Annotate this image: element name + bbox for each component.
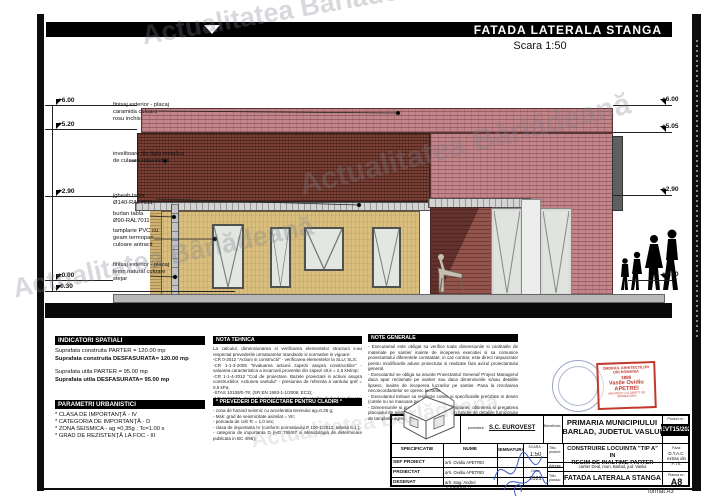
level-line <box>45 291 235 292</box>
annotation-wood-finish: finisaj exterior - placaj lemn natural c… <box>113 262 177 282</box>
annotation-windows: tamplarie PVC cu geam termopan culoare a… <box>113 228 177 248</box>
fold-mark-icon <box>204 25 220 34</box>
porch-pillar <box>521 199 541 295</box>
designer-name: S.C. EUROVEST S.R.L. <box>489 425 535 442</box>
building-roof-metal-tile <box>137 133 430 202</box>
dimension-line-vertical <box>52 105 53 291</box>
sheet-title-value: FATADA LATERALA STANGA <box>564 475 661 482</box>
phase-value: D.T.A.C. extras din P.Th. <box>664 451 689 466</box>
drawing-sheet: FATADA LATERALA STANGA Scara 1:50 <box>0 0 707 500</box>
section-title-indicatori: INDICATORI SPATIALI <box>55 336 205 345</box>
section-title-note-generale: NOTE GENERALE <box>368 334 518 342</box>
level-right-1: +5.05 <box>662 123 678 130</box>
window-casement-symbol <box>306 229 342 269</box>
porch-interior <box>430 207 492 295</box>
door-casement-symbol <box>543 211 569 293</box>
indicatori-line: Suprafata utila PARTER = 95.00 mp <box>55 369 215 376</box>
project-no-label: Proiect nr.: <box>663 417 689 421</box>
level-right-0: +6.00 <box>662 96 678 103</box>
tb-line <box>547 471 690 472</box>
tb-line <box>562 414 563 443</box>
row-spec: DESENAT <box>393 480 442 485</box>
tb-line <box>662 414 663 487</box>
row-spec: PROIECTAT <box>393 470 442 475</box>
format-label: format A3 <box>648 489 674 495</box>
indicatori-line: Suprafata construita DESFASURATA= 120.00… <box>55 356 215 363</box>
window-3 <box>304 227 344 271</box>
prevederi-body: - zona de hazard seismic cu acceleratia … <box>213 408 362 441</box>
client-name: PRIMARIA MUNICIPIULUI BARLAD, JUDETUL VA… <box>562 419 662 436</box>
annotation-roof: invelitoare din tigla metalica de culoar… <box>113 151 191 165</box>
level-line <box>45 196 137 197</box>
porch-door-2 <box>541 209 571 295</box>
window-casement-symbol <box>272 229 289 286</box>
window-1 <box>212 224 244 289</box>
sheet-no-value: A8 <box>664 477 689 487</box>
architect-stamp: ORDINUL ARHITECTILOR DIN ROMANIA 3886 Va… <box>596 361 657 410</box>
address-value: cartier Deal, mun. Barlad, jud. Vaslui <box>564 464 661 469</box>
window-casement-symbol <box>374 229 399 286</box>
row-spec: SEF PROIECT <box>393 460 442 465</box>
designer-label: proiectant: <box>468 426 485 430</box>
building-plinth <box>113 294 665 303</box>
border-microtext <box>696 40 698 340</box>
level-line <box>613 132 672 133</box>
tb-line <box>390 443 690 444</box>
round-stamp-inner <box>558 366 598 406</box>
level-line <box>613 105 672 106</box>
bench-icon <box>434 250 470 294</box>
level-line <box>45 129 137 130</box>
tb-line <box>460 414 461 443</box>
section-title-prevederi: * PREVEDERI DE PROIECTARE PENTRU CLADIRI… <box>213 398 362 406</box>
section-title-nota-tehnica: NOTA TEHNICA <box>213 336 362 344</box>
scale-label: Scara 1:50 <box>495 40 585 52</box>
designer-cell: proiectant: S.C. EUROVEST S.R.L. inregis… <box>460 416 543 442</box>
parametri-line: * GRAD DE REZISTENŢĂ LA FOC - III <box>55 433 215 440</box>
level-line <box>613 195 672 196</box>
porch-door-1 <box>492 209 522 295</box>
ground-line <box>45 303 672 318</box>
title-bar: FATADA LATERALA STANGA <box>46 22 672 37</box>
annotation-downspout: burlan tabla Ø90-RAL7011 <box>113 211 177 225</box>
indicatori-line: Suprafata utila DESFASURATA= 95.00 mp <box>55 377 215 384</box>
indicatori-line: Suprafata construita PARTER = 120.00 mp <box>55 348 215 355</box>
building-edge-trim <box>612 136 623 211</box>
level-line <box>45 105 137 106</box>
client-label: Beneficiar: <box>544 424 562 428</box>
building-gutter <box>135 202 432 211</box>
house-sketch-icon <box>396 383 462 443</box>
project-title-label: Titlu proiect: <box>549 446 563 454</box>
level-right-2: +2.90 <box>662 186 678 193</box>
tb-line <box>543 414 544 443</box>
sheet-title: FATADA LATERALA STANGA <box>474 23 662 37</box>
phase-label: Faza: <box>664 446 689 450</box>
level-line <box>45 280 113 281</box>
window-2 <box>270 227 291 288</box>
address-label: Adresa: <box>549 464 563 468</box>
signature-scribble <box>488 446 552 498</box>
window-4 <box>372 227 401 288</box>
level-line <box>628 280 672 281</box>
people-silhouette-icon <box>620 222 686 296</box>
door-casement-symbol <box>494 211 520 293</box>
building-brick-gable-band <box>141 108 613 133</box>
parametri-line: * CATEGORIA DE IMPORTANŢĂ - D <box>55 419 215 426</box>
section-title-parametri: PARAMETRI URBANISTICI <box>55 400 205 409</box>
parametri-line: * CLASA DE IMPORTANŢĂ - IV <box>55 412 215 419</box>
stamp-footer: ARHITECT CU DREPT DE SEMNATURA <box>599 391 654 400</box>
col-specificatie: SPECIFICATIE <box>392 447 442 452</box>
level-right-3: +0.10 <box>662 271 678 278</box>
window-casement-symbol <box>214 226 242 287</box>
sheet-border-left <box>37 14 44 491</box>
project-no-value: EVT15/2021 <box>661 424 689 436</box>
parametri-line: * ZONA SEISMICA - ag =0,35g ; Tc=1.00 s <box>55 426 215 433</box>
sheet-title-label: Titlu plansa: <box>549 474 563 482</box>
sheet-border-bottom <box>37 488 701 490</box>
